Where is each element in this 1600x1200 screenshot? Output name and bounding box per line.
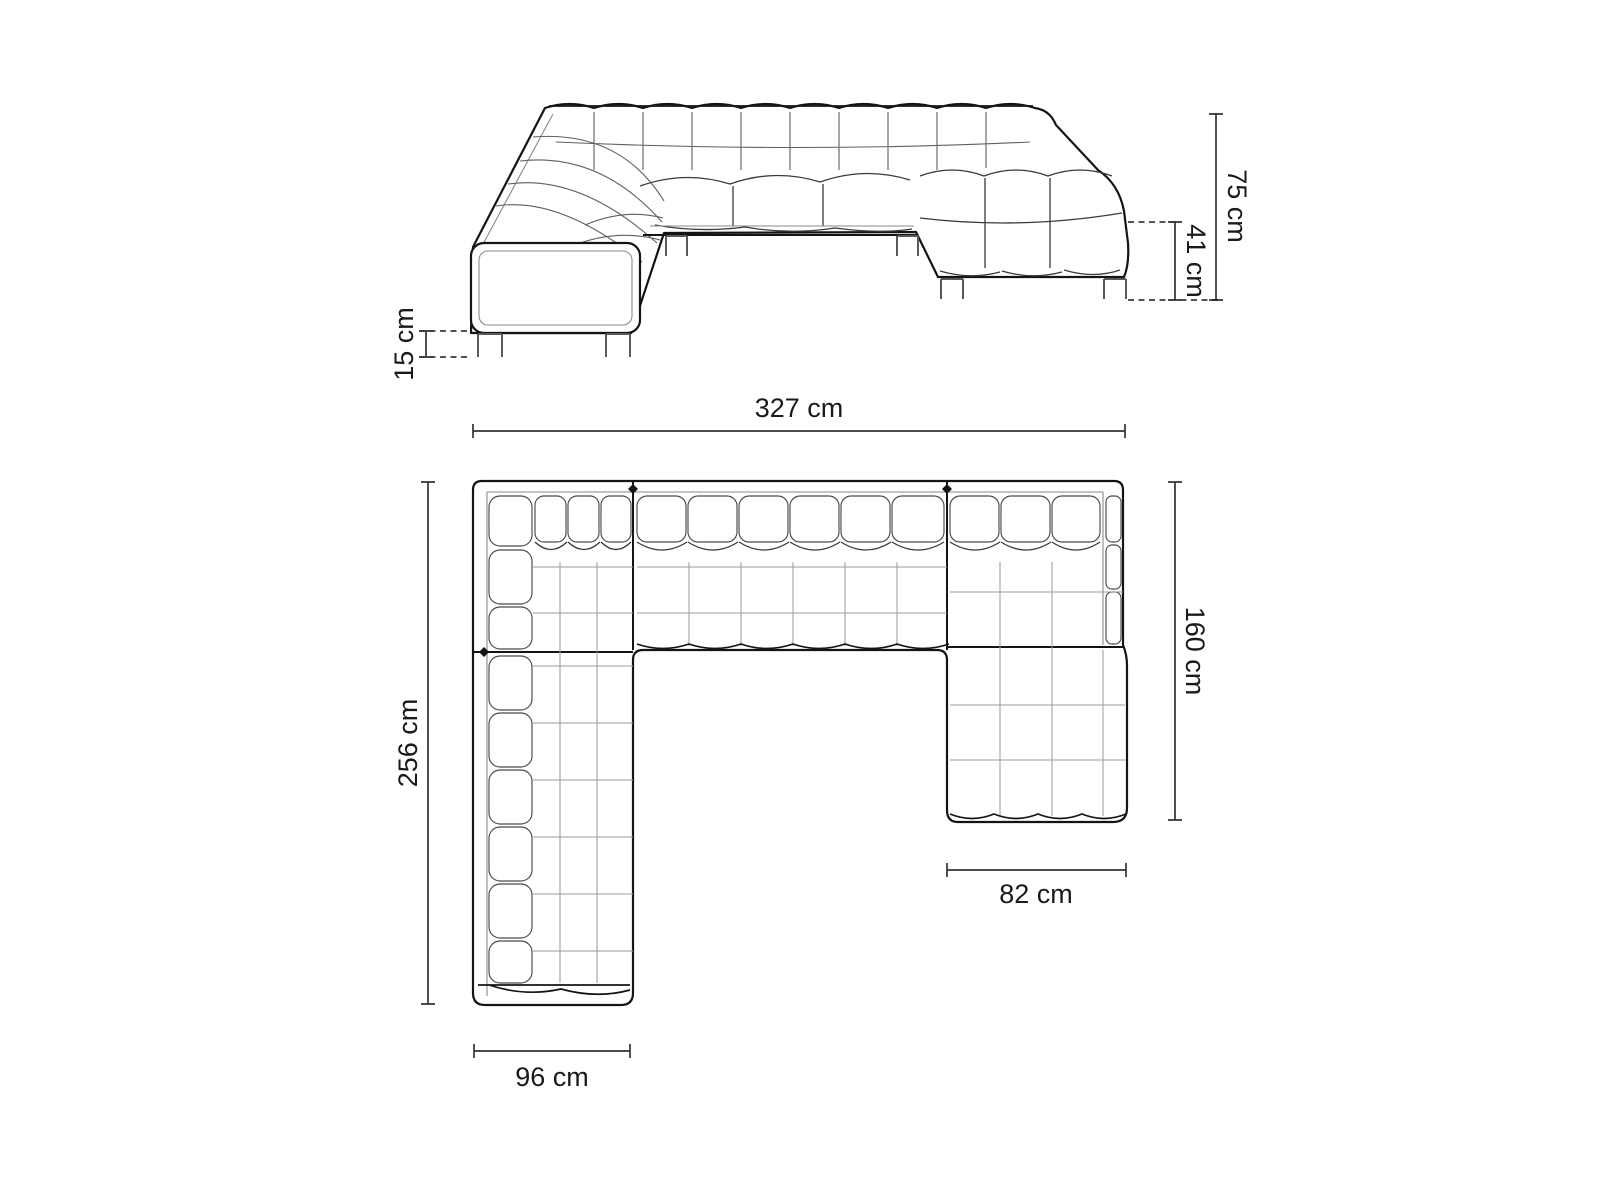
front-view: 75 cm 41 cm 15 cm 327 cm: [389, 104, 1252, 438]
dim-seat-height-line: [1168, 222, 1182, 300]
plan-sofa-outline: [473, 481, 1127, 1005]
front-left-arm-panel: [471, 243, 640, 333]
diagram-canvas: 75 cm 41 cm 15 cm 327 cm: [0, 0, 1600, 1200]
plan-back-cushions: [489, 496, 1121, 546]
dim-overall-depth-line: [421, 482, 435, 1004]
dim-seat-height-label: 41 cm: [1181, 224, 1211, 298]
dim-overall-width-line: [473, 424, 1125, 438]
dim-left-arm-width-label: 96 cm: [515, 1062, 589, 1092]
dim-overall-height-label: 75 cm: [1222, 169, 1252, 243]
dim-left-arm-width-line: [474, 1044, 630, 1058]
top-view: 256 cm 160 cm 96 cm 82 cm: [393, 481, 1210, 1092]
dim-leg-height-line: [419, 331, 433, 357]
plan-left-arm-cushions: [489, 550, 532, 983]
dim-leg-height-label: 15 cm: [389, 307, 419, 381]
dim-chaise-width-line: [947, 863, 1126, 877]
dim-chaise-depth-label: 160 cm: [1180, 607, 1210, 696]
dim-overall-depth-label: 256 cm: [393, 699, 423, 788]
dim-chaise-depth-line: [1168, 482, 1182, 820]
plan-right-band-cushions: [1106, 545, 1121, 644]
dim-overall-width-label: 327 cm: [755, 393, 844, 423]
dim-chaise-width-label: 82 cm: [999, 879, 1073, 909]
sofa-dimension-diagram: 75 cm 41 cm 15 cm 327 cm: [0, 0, 1600, 1200]
